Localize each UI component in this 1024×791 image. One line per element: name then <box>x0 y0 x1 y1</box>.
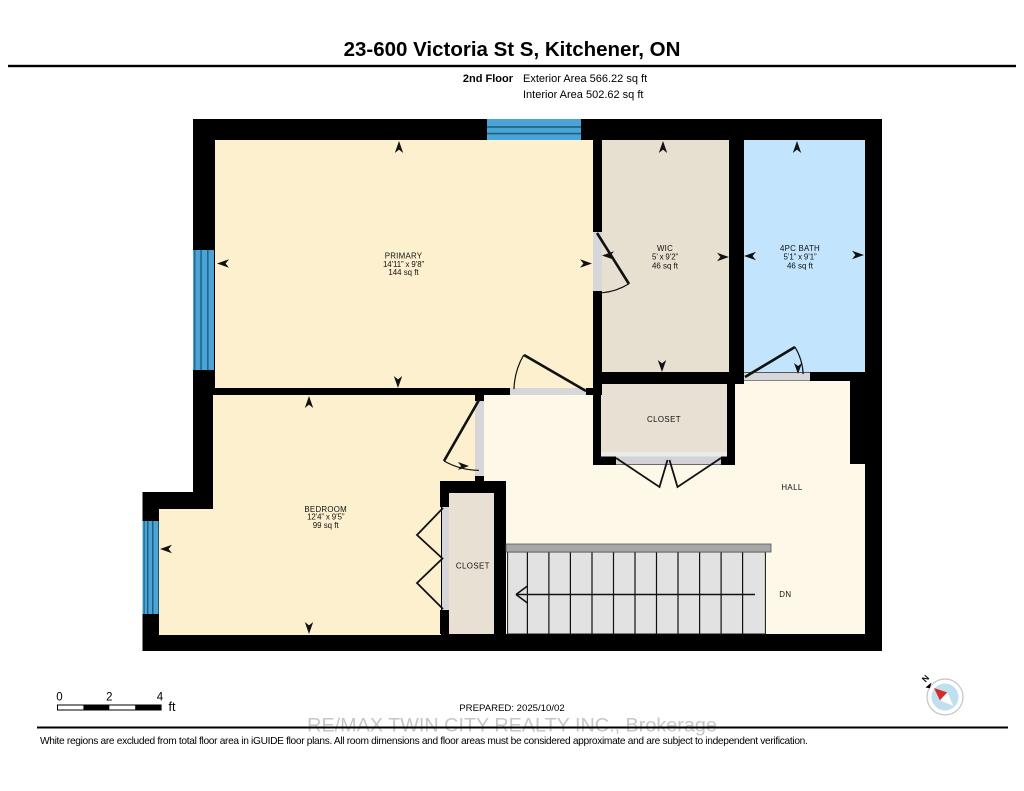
svg-text:Exterior Area 566.22 sq ft: Exterior Area 566.22 sq ft <box>523 73 647 85</box>
svg-text:99 sq ft: 99 sq ft <box>313 521 340 530</box>
svg-text:23-600 Victoria St S, Kitchene: 23-600 Victoria St S, Kitchener, ON <box>344 38 681 61</box>
svg-text:CLOSET: CLOSET <box>456 562 490 571</box>
svg-text:DN: DN <box>779 590 791 599</box>
svg-text:5’1” x 9’1”: 5’1” x 9’1” <box>784 253 818 262</box>
svg-text:Interior Area 502.62 sq ft: Interior Area 502.62 sq ft <box>523 89 643 101</box>
svg-text:46 sq ft: 46 sq ft <box>652 261 679 270</box>
svg-text:2nd Floor: 2nd Floor <box>463 73 514 85</box>
svg-text:White regions are excluded fro: White regions are excluded from total fl… <box>40 736 808 747</box>
svg-text:2: 2 <box>106 692 112 704</box>
svg-text:0: 0 <box>56 692 62 704</box>
svg-text:4: 4 <box>157 692 164 704</box>
svg-text:PREPARED: 2025/10/02: PREPARED: 2025/10/02 <box>459 703 564 714</box>
svg-text:HALL: HALL <box>781 483 803 492</box>
svg-text:5’ x 9’2”: 5’ x 9’2” <box>652 253 679 262</box>
svg-text:ft: ft <box>169 700 176 714</box>
svg-text:RE/MAX TWIN CITY REALTY INC.,: RE/MAX TWIN CITY REALTY INC., Brokerage <box>307 715 717 737</box>
svg-text:46 sq ft: 46 sq ft <box>787 261 814 270</box>
svg-text:144 sq ft: 144 sq ft <box>388 268 419 277</box>
svg-text:CLOSET: CLOSET <box>647 415 681 424</box>
